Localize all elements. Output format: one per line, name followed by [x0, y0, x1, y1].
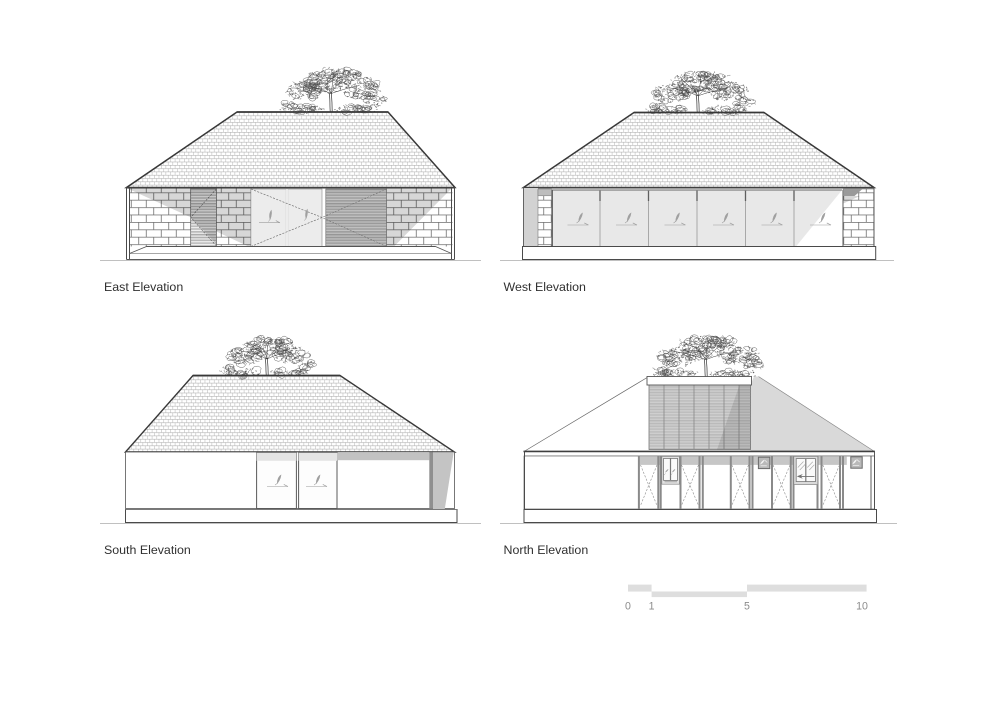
svg-text:West Elevation: West Elevation [504, 280, 587, 294]
svg-text:0: 0 [625, 601, 631, 613]
svg-text:5: 5 [744, 601, 750, 613]
svg-text:10: 10 [856, 601, 868, 613]
svg-text:1: 1 [649, 601, 655, 613]
svg-text:South Elevation: South Elevation [104, 543, 191, 557]
svg-text:East Elevation: East Elevation [104, 280, 183, 294]
svg-text:North Elevation: North Elevation [504, 543, 589, 557]
